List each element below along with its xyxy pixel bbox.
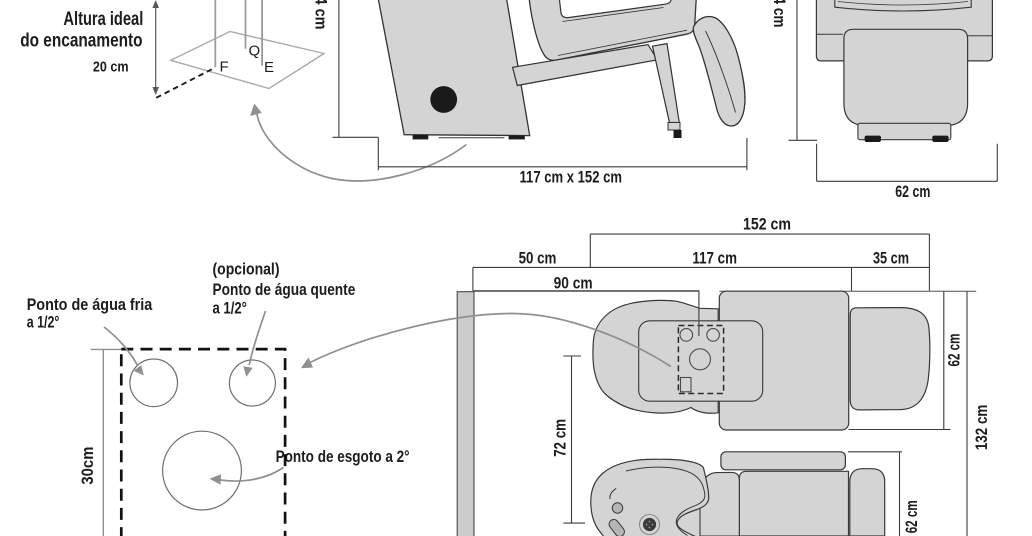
svg-text:Q: Q: [249, 43, 261, 60]
svg-text:4 cm: 4 cm: [312, 0, 330, 30]
svg-text:62 cm: 62 cm: [903, 500, 921, 533]
svg-text:20 cm: 20 cm: [93, 60, 129, 76]
svg-text:do encanamento: do encanamento: [20, 31, 142, 52]
svg-text:Altura ideal: Altura ideal: [63, 9, 143, 30]
svg-text:Ponto de água fria: Ponto de água fria: [27, 295, 153, 314]
svg-text:117 cm: 117 cm: [692, 249, 737, 267]
svg-text:72 cm: 72 cm: [552, 419, 570, 457]
svg-text:50 cm: 50 cm: [519, 249, 557, 267]
svg-text:F: F: [220, 59, 229, 76]
svg-text:117 cm x 152 cm: 117 cm x 152 cm: [520, 169, 623, 187]
svg-text:E: E: [264, 59, 274, 76]
svg-text:62 cm: 62 cm: [946, 334, 964, 367]
svg-text:(opcional): (opcional): [213, 260, 280, 279]
svg-text:30cm: 30cm: [79, 447, 97, 485]
svg-text:Ponto de água quente: Ponto de água quente: [213, 280, 356, 299]
svg-text:152 cm: 152 cm: [743, 216, 791, 234]
svg-text:90 cm: 90 cm: [554, 275, 593, 293]
svg-text:a 1/2°: a 1/2°: [27, 313, 60, 332]
svg-text:4 cm: 4 cm: [770, 0, 788, 28]
svg-text:Ponto de esgoto a 2°: Ponto de esgoto a 2°: [276, 447, 410, 466]
svg-text:35 cm: 35 cm: [873, 249, 909, 267]
svg-text:a 1/2°: a 1/2°: [213, 299, 248, 318]
svg-text:132 cm: 132 cm: [973, 405, 991, 451]
svg-text:62 cm: 62 cm: [895, 183, 930, 201]
